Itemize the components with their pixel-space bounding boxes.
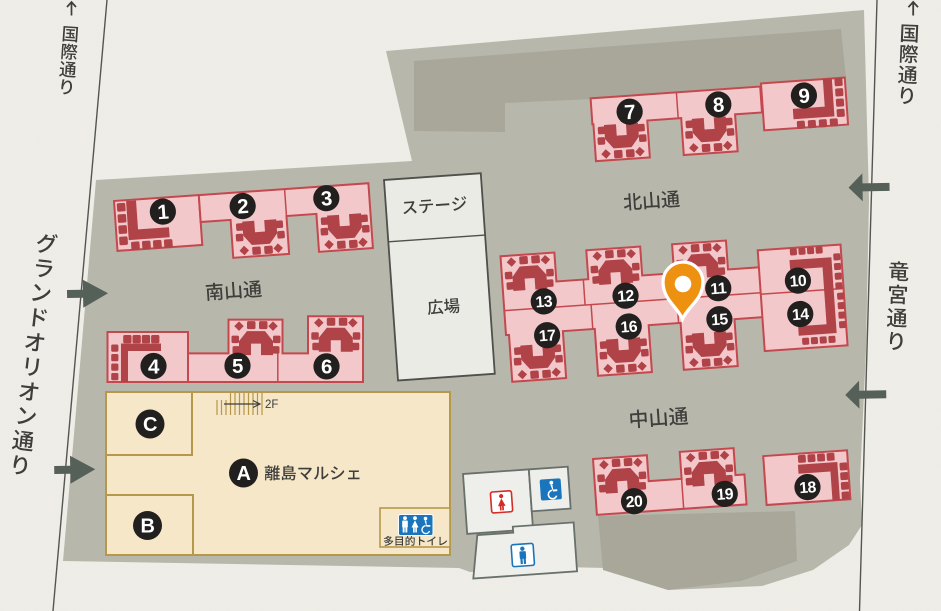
svg-text:3: 3 — [320, 187, 333, 211]
svg-text:12: 12 — [617, 288, 635, 306]
svg-text:2F: 2F — [265, 399, 278, 411]
svg-text:2: 2 — [236, 195, 249, 219]
svg-text:4: 4 — [148, 355, 160, 378]
svg-text:1: 1 — [157, 201, 170, 225]
svg-text:B: B — [141, 516, 155, 538]
svg-text:14: 14 — [791, 306, 809, 324]
svg-text:10: 10 — [789, 273, 807, 291]
svg-text:A: A — [237, 463, 251, 485]
svg-text:15: 15 — [711, 311, 729, 329]
svg-text:17: 17 — [538, 327, 556, 345]
svg-text:C: C — [143, 414, 157, 436]
svg-text:9: 9 — [798, 84, 811, 108]
svg-text:11: 11 — [710, 280, 728, 298]
svg-text:7: 7 — [623, 101, 636, 125]
svg-text:19: 19 — [716, 486, 734, 504]
svg-text:5: 5 — [232, 355, 243, 378]
svg-text:8: 8 — [712, 93, 725, 117]
svg-text:6: 6 — [321, 356, 332, 379]
svg-text:16: 16 — [620, 319, 638, 337]
svg-text:18: 18 — [799, 479, 817, 497]
svg-text:20: 20 — [625, 493, 643, 511]
svg-text:13: 13 — [535, 293, 553, 311]
